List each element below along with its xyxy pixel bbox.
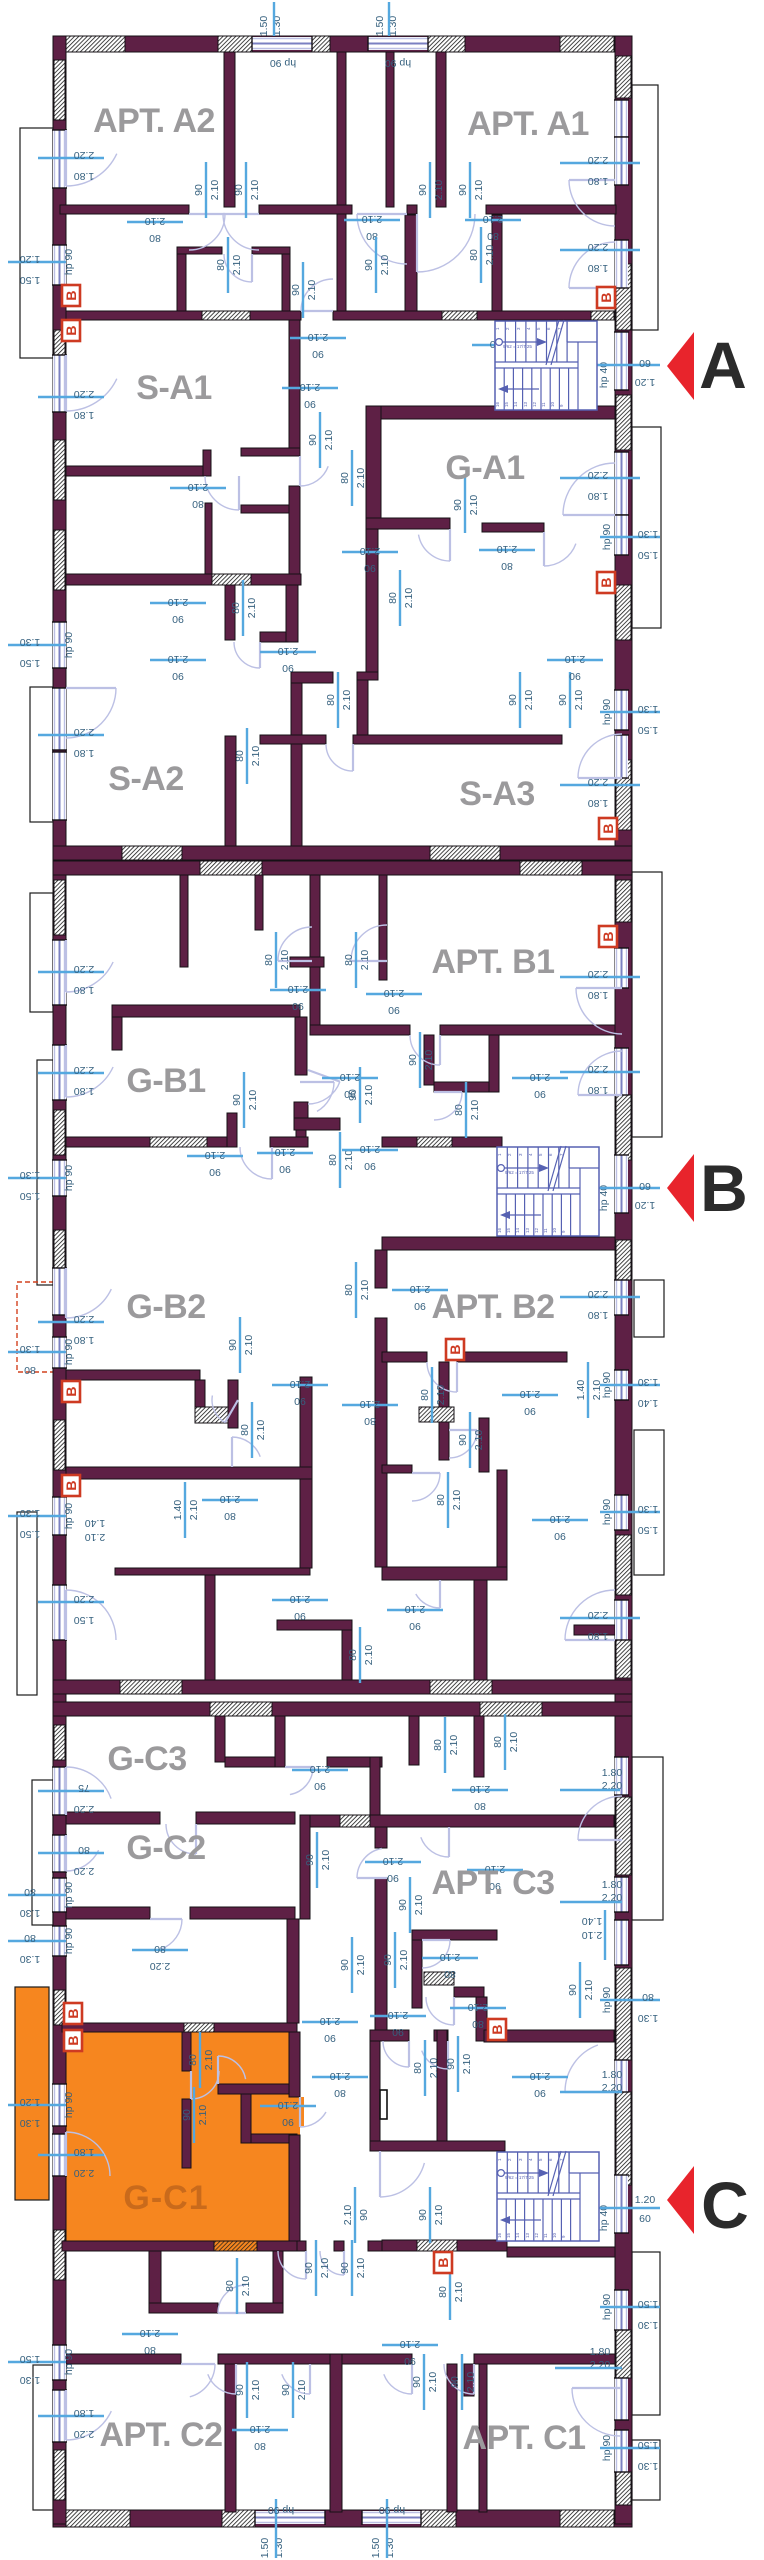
svg-text:2.20: 2.20 <box>74 149 95 161</box>
svg-text:1.80: 1.80 <box>602 1879 623 1891</box>
svg-text:APT. B1: APT. B1 <box>431 943 554 981</box>
svg-text:80: 80 <box>24 1364 36 1376</box>
svg-text:1.80: 1.80 <box>588 989 609 1001</box>
svg-text:1.30: 1.30 <box>20 1907 41 1919</box>
svg-text:90: 90 <box>172 613 184 625</box>
svg-text:80: 80 <box>435 1494 447 1506</box>
svg-text:hp 90: hp 90 <box>601 699 613 725</box>
svg-text:90: 90 <box>404 2355 416 2367</box>
svg-text:2.10: 2.10 <box>300 381 321 393</box>
svg-text:G-B2: G-B2 <box>126 1288 205 1326</box>
svg-text:1.80: 1.80 <box>74 2407 95 2419</box>
svg-text:90: 90 <box>449 2376 461 2388</box>
svg-text:90: 90 <box>324 2032 336 2044</box>
svg-text:90: 90 <box>414 1300 426 1312</box>
svg-text:2.10: 2.10 <box>168 653 189 665</box>
svg-text:90: 90 <box>312 348 324 360</box>
svg-text:1.20: 1.20 <box>635 2194 656 2206</box>
svg-text:1.30: 1.30 <box>638 2012 659 2024</box>
svg-text:2.10: 2.10 <box>243 1335 255 1356</box>
svg-text:2.20: 2.20 <box>588 776 609 788</box>
svg-text:hp 90: hp 90 <box>601 1499 613 1525</box>
svg-text:hp 90: hp 90 <box>63 632 75 658</box>
svg-text:2.20: 2.20 <box>74 1865 95 1877</box>
svg-text:hp 90: hp 90 <box>63 1882 75 1908</box>
svg-text:hp 90: hp 90 <box>63 1165 75 1191</box>
svg-text:90: 90 <box>303 2262 315 2274</box>
svg-text:80: 80 <box>24 1886 36 1898</box>
svg-text:90: 90 <box>457 1434 469 1446</box>
svg-text:2.10: 2.10 <box>310 1763 331 1775</box>
svg-text:1.50: 1.50 <box>638 724 659 736</box>
svg-text:9/62 = 17/7 25: 9/62 = 17/7 25 <box>503 344 532 349</box>
svg-text:2.10: 2.10 <box>220 1493 241 1505</box>
svg-text:2.10: 2.10 <box>308 331 329 343</box>
svg-text:80: 80 <box>187 2054 199 2066</box>
svg-text:B: B <box>63 290 79 300</box>
svg-text:2.10: 2.10 <box>520 1388 541 1400</box>
svg-text:2.10: 2.10 <box>231 255 243 276</box>
svg-text:1.20: 1.20 <box>635 376 656 388</box>
svg-text:2.10: 2.10 <box>403 588 415 609</box>
svg-text:90: 90 <box>172 670 184 682</box>
svg-text:1.80: 1.80 <box>588 262 609 274</box>
svg-text:G-C3: G-C3 <box>107 1740 186 1778</box>
svg-text:90: 90 <box>307 434 319 446</box>
svg-text:2.10: 2.10 <box>340 1071 361 1083</box>
svg-text:1.20: 1.20 <box>20 253 41 265</box>
svg-text:2.10: 2.10 <box>343 1150 355 1171</box>
svg-text:2.20: 2.20 <box>74 388 95 400</box>
svg-text:2.10: 2.10 <box>355 1955 367 1976</box>
svg-text:80: 80 <box>444 1968 456 1980</box>
svg-text:2.20: 2.20 <box>74 2428 95 2440</box>
svg-text:2.10: 2.10 <box>384 987 405 999</box>
svg-text:hp 90: hp 90 <box>63 2092 75 2118</box>
svg-text:90: 90 <box>388 1004 400 1016</box>
svg-text:1.30: 1.30 <box>638 1376 659 1388</box>
svg-text:90: 90 <box>231 1094 243 1106</box>
svg-text:2.10: 2.10 <box>427 2372 439 2393</box>
svg-text:14: 14 <box>513 401 518 407</box>
svg-text:2.10: 2.10 <box>360 1143 381 1155</box>
svg-text:hp 90: hp 90 <box>270 57 296 69</box>
svg-text:1.30: 1.30 <box>20 1169 41 1181</box>
svg-text:15: 15 <box>506 2232 511 2238</box>
svg-text:90: 90 <box>569 670 581 682</box>
svg-text:B: B <box>600 931 616 941</box>
svg-text:2.10: 2.10 <box>400 2338 421 2350</box>
svg-text:G-C2: G-C2 <box>126 1829 205 1867</box>
svg-text:2.10: 2.10 <box>508 1732 520 1753</box>
svg-text:1.80: 1.80 <box>588 797 609 809</box>
svg-text:90: 90 <box>457 184 469 196</box>
svg-text:2.10: 2.10 <box>296 2380 308 2401</box>
svg-text:80: 80 <box>474 1800 486 1812</box>
svg-text:2.10: 2.10 <box>330 2070 351 2082</box>
svg-text:1.50: 1.50 <box>638 549 659 561</box>
svg-text:2.20: 2.20 <box>150 1960 171 1972</box>
svg-text:1.80: 1.80 <box>602 1767 623 1779</box>
svg-text:2.10: 2.10 <box>250 746 262 767</box>
svg-text:80: 80 <box>224 1510 236 1522</box>
svg-text:80: 80 <box>419 1389 431 1401</box>
svg-text:16: 16 <box>497 1227 502 1233</box>
svg-text:1.50: 1.50 <box>638 2439 659 2451</box>
svg-text:90: 90 <box>417 184 429 196</box>
svg-text:14: 14 <box>515 1227 520 1233</box>
svg-text:2.10: 2.10 <box>405 1603 426 1615</box>
svg-text:11: 11 <box>541 402 546 407</box>
svg-text:B: B <box>700 1151 748 1225</box>
svg-text:80: 80 <box>339 472 351 484</box>
svg-text:90: 90 <box>445 2058 457 2070</box>
svg-text:2.20: 2.20 <box>74 1064 95 1076</box>
svg-text:2.20: 2.20 <box>74 1593 95 1605</box>
svg-text:90: 90 <box>417 2209 429 2221</box>
svg-text:2.10: 2.10 <box>379 255 391 276</box>
svg-text:1.50: 1.50 <box>74 1614 95 1626</box>
svg-text:B: B <box>65 2008 81 2018</box>
svg-text:1.40: 1.40 <box>172 1500 184 1521</box>
svg-text:1.80: 1.80 <box>588 175 609 187</box>
svg-text:2.10: 2.10 <box>278 2099 299 2111</box>
svg-text:B: B <box>63 1480 79 1490</box>
svg-text:80: 80 <box>487 230 499 242</box>
svg-text:2.10: 2.10 <box>306 280 318 301</box>
svg-text:2.20: 2.20 <box>74 963 95 975</box>
svg-text:2.10: 2.10 <box>473 1430 485 1451</box>
svg-text:80: 80 <box>230 602 242 614</box>
svg-text:14: 14 <box>515 2232 520 2238</box>
svg-text:90: 90 <box>397 1899 409 1911</box>
svg-text:1.80: 1.80 <box>74 984 95 996</box>
svg-text:1.80: 1.80 <box>588 490 609 502</box>
svg-text:1.80: 1.80 <box>74 747 95 759</box>
svg-text:2.20: 2.20 <box>588 1063 609 1075</box>
svg-text:2.10: 2.10 <box>359 950 371 971</box>
svg-text:90: 90 <box>507 694 519 706</box>
svg-text:2.10: 2.10 <box>205 1149 226 1161</box>
svg-text:2.10: 2.10 <box>279 950 291 971</box>
svg-text:2.20: 2.20 <box>588 968 609 980</box>
svg-text:80: 80 <box>343 1284 355 1296</box>
svg-text:1.30: 1.30 <box>638 2319 659 2331</box>
svg-text:1.50: 1.50 <box>638 2298 659 2310</box>
svg-text:1.40: 1.40 <box>582 1915 603 1927</box>
svg-text:G-C1: G-C1 <box>123 2179 208 2217</box>
svg-text:2.10: 2.10 <box>247 1090 259 1111</box>
svg-text:2.10: 2.10 <box>275 1146 296 1158</box>
svg-text:80: 80 <box>215 259 227 271</box>
svg-text:2.20: 2.20 <box>74 2167 95 2179</box>
svg-text:A: A <box>699 328 747 402</box>
svg-text:2.10: 2.10 <box>423 1050 435 1071</box>
svg-text:75: 75 <box>78 1782 90 1794</box>
svg-text:10: 10 <box>552 2232 557 2238</box>
svg-text:2.10: 2.10 <box>341 690 353 711</box>
svg-text:2.20: 2.20 <box>588 1288 609 1300</box>
svg-text:1.40: 1.40 <box>638 1397 659 1409</box>
svg-text:G-B1: G-B1 <box>126 1062 205 1100</box>
svg-text:1.80: 1.80 <box>74 1085 95 1097</box>
svg-text:60: 60 <box>639 357 651 369</box>
svg-text:80: 80 <box>144 2344 156 2356</box>
svg-text:80: 80 <box>453 1104 465 1116</box>
svg-text:90: 90 <box>209 1166 221 1178</box>
svg-text:2.10: 2.10 <box>573 690 585 711</box>
svg-text:90: 90 <box>233 184 245 196</box>
svg-text:2.10: 2.10 <box>168 596 189 608</box>
svg-text:2.10: 2.10 <box>188 481 209 493</box>
svg-text:2.10: 2.10 <box>240 2276 252 2297</box>
svg-text:80: 80 <box>224 2280 236 2292</box>
svg-text:2.20: 2.20 <box>588 241 609 253</box>
svg-text:2.10: 2.10 <box>473 180 485 201</box>
svg-text:1.50: 1.50 <box>20 274 41 286</box>
svg-text:80: 80 <box>149 232 161 244</box>
svg-text:80: 80 <box>501 560 513 572</box>
svg-text:hp 90: hp 90 <box>601 1987 613 2013</box>
svg-text:80: 80 <box>472 2018 484 2030</box>
svg-text:2.10: 2.10 <box>342 2205 354 2226</box>
svg-text:hp 90: hp 90 <box>63 2349 75 2375</box>
svg-text:2.10: 2.10 <box>410 1283 431 1295</box>
svg-text:80: 80 <box>334 2087 346 2099</box>
svg-text:80: 80 <box>364 1415 376 1427</box>
svg-text:2.10: 2.10 <box>85 1531 106 1543</box>
svg-text:B: B <box>598 577 614 587</box>
svg-text:80: 80 <box>192 498 204 510</box>
svg-text:hp 90: hp 90 <box>601 2294 613 2320</box>
svg-text:90: 90 <box>280 2384 292 2396</box>
svg-text:80: 80 <box>492 1736 504 1748</box>
svg-text:S-A1: S-A1 <box>136 369 211 407</box>
svg-text:90: 90 <box>304 1854 316 1866</box>
svg-text:1.80: 1.80 <box>590 2346 611 2358</box>
svg-text:10: 10 <box>550 401 555 407</box>
svg-text:1.50: 1.50 <box>20 657 41 669</box>
svg-text:90: 90 <box>364 562 376 574</box>
svg-text:2.10: 2.10 <box>435 1385 447 1406</box>
svg-text:1.50: 1.50 <box>20 1190 41 1202</box>
svg-text:G-A1: G-A1 <box>445 449 524 487</box>
svg-text:hp 90: hp 90 <box>601 524 613 550</box>
svg-text:2.10: 2.10 <box>565 653 586 665</box>
svg-text:80: 80 <box>254 2440 266 2452</box>
svg-text:2.10: 2.10 <box>550 1513 571 1525</box>
svg-text:80: 80 <box>432 1739 444 1751</box>
svg-text:2.10: 2.10 <box>582 1929 603 1941</box>
svg-text:2.10: 2.10 <box>451 1490 463 1511</box>
svg-text:1.30: 1.30 <box>638 528 659 540</box>
svg-text:C: C <box>701 2168 749 2242</box>
svg-text:90: 90 <box>409 1620 421 1632</box>
svg-text:12: 12 <box>534 1227 539 1233</box>
svg-text:2.10: 2.10 <box>320 1850 332 1871</box>
svg-text:hp 90: hp 90 <box>379 2504 405 2516</box>
svg-text:1.80: 1.80 <box>588 1630 609 1642</box>
svg-text:B: B <box>600 823 616 833</box>
svg-text:16: 16 <box>497 2232 502 2238</box>
svg-text:80: 80 <box>327 1154 339 1166</box>
svg-text:2.20: 2.20 <box>74 1803 95 1815</box>
svg-text:2.10: 2.10 <box>288 983 309 995</box>
svg-text:90: 90 <box>279 1163 291 1175</box>
svg-text:13: 13 <box>525 2232 530 2238</box>
svg-text:2.10: 2.10 <box>188 1500 200 1521</box>
svg-text:1.80: 1.80 <box>74 170 95 182</box>
svg-text:80: 80 <box>343 954 355 966</box>
svg-text:80: 80 <box>78 1844 90 1856</box>
svg-text:2.10: 2.10 <box>530 2070 551 2082</box>
svg-text:2.10: 2.10 <box>453 2282 465 2303</box>
svg-text:1.80: 1.80 <box>588 1309 609 1321</box>
svg-text:2.10: 2.10 <box>433 180 445 201</box>
svg-text:2.10: 2.10 <box>290 1593 311 1605</box>
svg-text:APT. C3: APT. C3 <box>431 1864 554 1902</box>
svg-text:2.10: 2.10 <box>250 2380 262 2401</box>
svg-text:1.50: 1.50 <box>370 2538 382 2559</box>
svg-text:15: 15 <box>506 1227 511 1233</box>
svg-text:APT. C1: APT. C1 <box>462 2419 585 2457</box>
svg-text:2.10: 2.10 <box>468 495 480 516</box>
svg-text:2.10: 2.10 <box>203 2050 215 2071</box>
svg-text:hp 90: hp 90 <box>63 1928 75 1954</box>
svg-text:90: 90 <box>290 284 302 296</box>
svg-text:2.10: 2.10 <box>197 2105 209 2126</box>
svg-text:B: B <box>63 1386 79 1396</box>
svg-text:90: 90 <box>181 2109 193 2121</box>
svg-text:90: 90 <box>282 662 294 674</box>
svg-text:hp 90: hp 90 <box>385 57 411 69</box>
svg-text:hp 90: hp 90 <box>63 249 75 275</box>
svg-text:90: 90 <box>524 1405 536 1417</box>
svg-text:1.30: 1.30 <box>20 2117 41 2129</box>
svg-text:13: 13 <box>525 1227 530 1233</box>
svg-text:2.10: 2.10 <box>250 2423 271 2435</box>
svg-text:hp 90: hp 90 <box>268 2504 294 2516</box>
svg-text:90: 90 <box>392 2026 404 2038</box>
svg-text:2.10: 2.10 <box>278 645 299 657</box>
svg-text:90: 90 <box>567 1984 579 1996</box>
svg-text:2.10: 2.10 <box>255 1420 267 1441</box>
svg-text:90: 90 <box>382 1954 394 1966</box>
svg-text:90: 90 <box>227 1339 239 1351</box>
svg-text:2.10: 2.10 <box>440 1951 461 1963</box>
svg-text:1.40: 1.40 <box>575 1380 587 1401</box>
svg-text:1.50: 1.50 <box>374 16 386 37</box>
svg-text:90: 90 <box>554 1530 566 1542</box>
svg-text:B: B <box>489 2024 505 2034</box>
svg-text:2.10: 2.10 <box>355 468 367 489</box>
svg-text:80: 80 <box>263 954 275 966</box>
svg-text:hp 90: hp 90 <box>63 1339 75 1365</box>
svg-text:1.20: 1.20 <box>635 1199 656 1211</box>
svg-text:1.30: 1.30 <box>20 636 41 648</box>
svg-text:B: B <box>598 292 614 302</box>
svg-text:2.20: 2.20 <box>588 154 609 166</box>
svg-text:1.30: 1.30 <box>638 2460 659 2472</box>
svg-text:2.10: 2.10 <box>468 2001 489 2013</box>
svg-text:B: B <box>447 1344 463 1354</box>
svg-text:90: 90 <box>407 1054 419 1066</box>
svg-text:2.10: 2.10 <box>483 213 504 225</box>
svg-text:15: 15 <box>504 401 509 407</box>
svg-text:2.10: 2.10 <box>360 545 381 557</box>
svg-text:1.50: 1.50 <box>20 2353 41 2365</box>
svg-text:1.30: 1.30 <box>638 1503 659 1515</box>
svg-text:2.10: 2.10 <box>461 2054 473 2075</box>
svg-text:2.10: 2.10 <box>470 1783 491 1795</box>
svg-text:1.80: 1.80 <box>588 1084 609 1096</box>
svg-text:80: 80 <box>24 1932 36 1944</box>
svg-text:1.50: 1.50 <box>638 1524 659 1536</box>
svg-text:90: 90 <box>292 1000 304 1012</box>
svg-text:2.10: 2.10 <box>530 1071 551 1083</box>
svg-text:2.20: 2.20 <box>74 1313 95 1325</box>
svg-text:80: 80 <box>154 1943 166 1955</box>
svg-text:1.50: 1.50 <box>20 1528 41 1540</box>
svg-text:2.10: 2.10 <box>388 2009 409 2021</box>
svg-text:2.10: 2.10 <box>433 2205 445 2226</box>
svg-text:2.10: 2.10 <box>383 1855 404 1867</box>
svg-text:B: B <box>63 325 79 335</box>
svg-text:2.10: 2.10 <box>363 1645 375 1666</box>
svg-text:2.10: 2.10 <box>355 2258 367 2279</box>
svg-text:13: 13 <box>523 401 528 407</box>
svg-text:90: 90 <box>557 694 569 706</box>
svg-text:9/62 = 17/7 25: 9/62 = 17/7 25 <box>505 2175 534 2180</box>
svg-text:90: 90 <box>193 184 205 196</box>
svg-text:90: 90 <box>358 2209 370 2221</box>
svg-text:2.10: 2.10 <box>398 1950 410 1971</box>
svg-text:1.30: 1.30 <box>638 703 659 715</box>
svg-text:90: 90 <box>339 2262 351 2274</box>
svg-text:APT. B2: APT. B2 <box>431 1288 554 1326</box>
svg-text:90: 90 <box>294 1395 306 1407</box>
svg-text:hp 90: hp 90 <box>601 1372 613 1398</box>
svg-text:16: 16 <box>495 401 500 407</box>
svg-text:2.10: 2.10 <box>246 598 258 619</box>
svg-text:2.10: 2.10 <box>484 245 496 266</box>
svg-text:1.50: 1.50 <box>258 16 270 37</box>
svg-text:2.10: 2.10 <box>497 543 518 555</box>
svg-text:90: 90 <box>363 259 375 271</box>
svg-text:80: 80 <box>234 750 246 762</box>
svg-text:80: 80 <box>412 2062 424 2074</box>
svg-text:80: 80 <box>468 249 480 261</box>
svg-text:1.80: 1.80 <box>74 409 95 421</box>
svg-text:1.80: 1.80 <box>602 2069 623 2081</box>
svg-text:2.10: 2.10 <box>290 1378 311 1390</box>
svg-text:2.10: 2.10 <box>583 1980 595 2001</box>
svg-text:2.10: 2.10 <box>323 430 335 451</box>
svg-text:90: 90 <box>282 2116 294 2128</box>
svg-text:APT. A2: APT. A2 <box>93 102 215 140</box>
svg-text:90: 90 <box>234 2384 246 2396</box>
svg-text:12: 12 <box>534 2232 539 2238</box>
svg-text:11: 11 <box>543 1228 548 1233</box>
svg-text:2.10: 2.10 <box>469 1100 481 1121</box>
svg-text:80: 80 <box>347 1649 359 1661</box>
svg-text:2.20: 2.20 <box>588 1609 609 1621</box>
svg-text:1.30: 1.30 <box>20 1507 41 1519</box>
svg-text:APT. A1: APT. A1 <box>467 105 589 143</box>
svg-text:2.10: 2.10 <box>209 180 221 201</box>
svg-text:2.10: 2.10 <box>145 215 166 227</box>
svg-text:2.10: 2.10 <box>428 2058 440 2079</box>
